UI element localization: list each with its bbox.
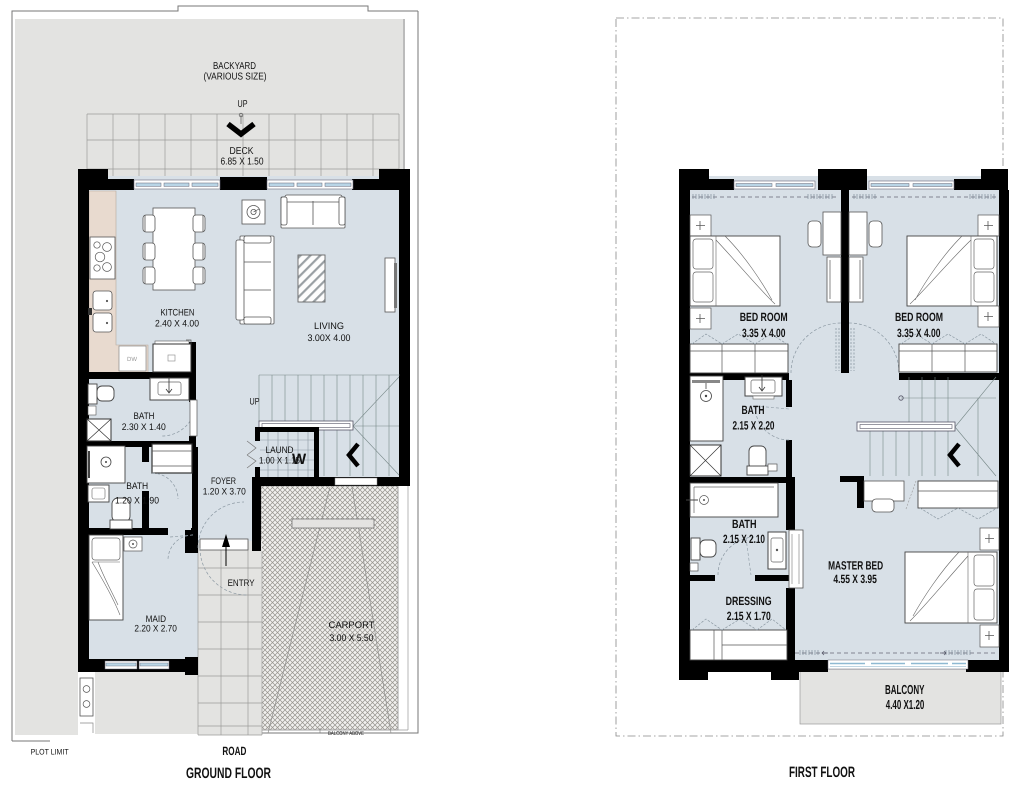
svg-text:DRESSING: DRESSING bbox=[726, 594, 772, 608]
svg-text:MASTER BED: MASTER BED bbox=[828, 559, 883, 573]
svg-text:LIVING: LIVING bbox=[314, 321, 344, 332]
svg-text:(VARIOUS SIZE): (VARIOUS SIZE) bbox=[204, 72, 267, 83]
svg-text:BACKYARD: BACKYARD bbox=[213, 61, 256, 72]
svg-text:DW: DW bbox=[127, 356, 137, 363]
svg-text:1.20 X 1.90: 1.20 X 1.90 bbox=[115, 496, 159, 507]
svg-text:4.55 X 3.95: 4.55 X 3.95 bbox=[833, 572, 877, 586]
svg-text:BED ROOM: BED ROOM bbox=[895, 310, 943, 324]
svg-text:2.20 X 2.70: 2.20 X 2.70 bbox=[134, 624, 177, 635]
svg-text:2.15 X 1.70: 2.15 X 1.70 bbox=[727, 609, 771, 623]
svg-text:3.35 X 4.00: 3.35 X 4.00 bbox=[742, 326, 786, 340]
svg-text:BATH: BATH bbox=[126, 481, 148, 492]
svg-text:FOYER: FOYER bbox=[211, 476, 236, 487]
svg-text:FIRST FLOOR: FIRST FLOOR bbox=[789, 764, 855, 781]
svg-text:2.15 X 2.20: 2.15 X 2.20 bbox=[733, 419, 775, 433]
svg-text:3.35 X 4.00: 3.35 X 4.00 bbox=[897, 326, 941, 340]
svg-text:2.15 X 2.10: 2.15 X 2.10 bbox=[723, 532, 765, 546]
svg-text:2.30 X 1.40: 2.30 X 1.40 bbox=[122, 422, 166, 433]
svg-text:1.20 X 3.70: 1.20 X 3.70 bbox=[203, 487, 246, 498]
svg-text:2.40 X 4.00: 2.40 X 4.00 bbox=[155, 319, 199, 330]
svg-text:BALCONY ABOVE: BALCONY ABOVE bbox=[328, 731, 364, 737]
svg-text:ENTRY: ENTRY bbox=[228, 578, 256, 589]
svg-text:6.85 X 1.50: 6.85 X 1.50 bbox=[221, 157, 264, 168]
svg-text:KITCHEN: KITCHEN bbox=[161, 308, 195, 319]
svg-text:DECK: DECK bbox=[230, 146, 254, 157]
svg-text:4.40 X1.20: 4.40 X1.20 bbox=[886, 697, 925, 712]
svg-text:GROUND FLOOR: GROUND FLOOR bbox=[186, 765, 271, 782]
svg-text:UP: UP bbox=[238, 99, 248, 110]
svg-text:3.00 X 5.50: 3.00 X 5.50 bbox=[330, 633, 374, 644]
svg-text:3.00X 4.00: 3.00X 4.00 bbox=[308, 333, 351, 344]
svg-text:UP: UP bbox=[250, 397, 260, 408]
svg-text:W: W bbox=[292, 451, 307, 468]
svg-text:BALCONY: BALCONY bbox=[885, 682, 925, 697]
svg-text:PLOT LIMIT: PLOT LIMIT bbox=[31, 748, 69, 757]
svg-text:ROAD: ROAD bbox=[222, 744, 246, 758]
svg-text:BATH: BATH bbox=[742, 403, 765, 417]
svg-text:BATH: BATH bbox=[134, 411, 155, 422]
svg-text:CARPORT: CARPORT bbox=[329, 620, 375, 631]
svg-text:BED ROOM: BED ROOM bbox=[740, 310, 788, 324]
svg-text:BATH: BATH bbox=[732, 517, 757, 531]
svg-text:LAUND: LAUND bbox=[266, 445, 294, 456]
